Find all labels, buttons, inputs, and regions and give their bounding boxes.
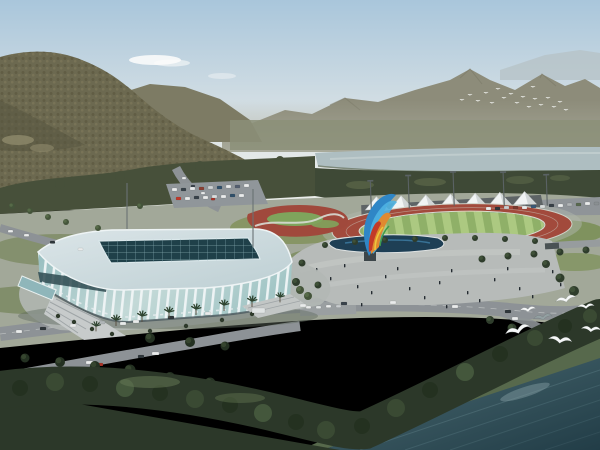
car bbox=[133, 320, 139, 323]
car bbox=[336, 305, 341, 308]
tree-highlight bbox=[557, 249, 561, 253]
tree-highlight bbox=[472, 235, 475, 238]
tree-highlight bbox=[63, 219, 66, 222]
person bbox=[446, 305, 447, 308]
car bbox=[486, 207, 491, 210]
tree-highlight bbox=[95, 225, 98, 228]
car bbox=[576, 203, 581, 206]
car bbox=[70, 324, 76, 327]
tree-highlight bbox=[186, 338, 192, 344]
tree-highlight bbox=[91, 362, 97, 368]
car bbox=[138, 355, 144, 358]
tree-highlight bbox=[221, 342, 226, 347]
person bbox=[467, 291, 468, 294]
car bbox=[505, 310, 511, 313]
car bbox=[176, 197, 181, 200]
tree-highlight bbox=[505, 253, 509, 257]
car bbox=[99, 321, 105, 324]
tree-highlight bbox=[297, 287, 301, 291]
car bbox=[201, 192, 205, 194]
car bbox=[522, 206, 527, 209]
car bbox=[172, 188, 177, 191]
car bbox=[549, 204, 554, 207]
car bbox=[185, 197, 190, 200]
car bbox=[244, 184, 249, 187]
tree-highlight bbox=[382, 237, 385, 240]
tree-highlight bbox=[27, 208, 30, 211]
tree-highlight bbox=[556, 274, 561, 279]
car bbox=[341, 302, 347, 305]
car bbox=[16, 330, 22, 333]
car bbox=[300, 304, 306, 307]
car bbox=[181, 188, 186, 191]
person bbox=[451, 269, 452, 272]
tree-highlight bbox=[442, 235, 445, 238]
car bbox=[208, 186, 213, 189]
car bbox=[585, 202, 590, 205]
tree-highlight bbox=[583, 247, 587, 251]
car bbox=[531, 205, 536, 208]
sports-complex-rendering bbox=[0, 0, 600, 450]
person bbox=[357, 285, 358, 288]
car bbox=[230, 194, 235, 197]
car bbox=[182, 177, 186, 179]
tree-highlight bbox=[487, 317, 491, 321]
car bbox=[152, 352, 159, 355]
tree-highlight bbox=[305, 293, 309, 297]
person bbox=[439, 281, 440, 284]
car bbox=[235, 185, 240, 188]
car bbox=[40, 327, 46, 330]
car bbox=[594, 202, 599, 205]
car bbox=[558, 204, 563, 207]
car bbox=[504, 206, 509, 209]
tree-highlight bbox=[352, 239, 355, 242]
tree-highlight bbox=[56, 358, 62, 364]
car bbox=[211, 198, 215, 200]
car bbox=[540, 205, 545, 208]
car bbox=[495, 207, 500, 210]
person bbox=[397, 267, 398, 270]
car bbox=[194, 196, 199, 199]
tree-highlight bbox=[293, 279, 297, 283]
person bbox=[371, 291, 372, 294]
scrub-plain bbox=[230, 120, 600, 150]
tree-highlight bbox=[137, 203, 140, 206]
car bbox=[24, 234, 29, 237]
car bbox=[190, 187, 195, 190]
car bbox=[316, 306, 321, 309]
person bbox=[385, 275, 386, 278]
car bbox=[78, 248, 83, 251]
car bbox=[120, 322, 126, 325]
car bbox=[8, 230, 13, 233]
pergola bbox=[545, 243, 559, 250]
car bbox=[512, 317, 518, 320]
cloud bbox=[154, 60, 190, 67]
person bbox=[519, 287, 520, 290]
tree-highlight bbox=[532, 238, 535, 241]
person bbox=[494, 278, 495, 281]
person bbox=[560, 283, 561, 286]
tree-highlight bbox=[146, 334, 152, 340]
tree-highlight bbox=[570, 287, 576, 293]
car bbox=[326, 305, 331, 308]
tree-highlight bbox=[9, 203, 12, 206]
person bbox=[424, 296, 425, 299]
person bbox=[552, 270, 553, 273]
person bbox=[330, 277, 331, 280]
car bbox=[221, 195, 226, 198]
car bbox=[199, 187, 204, 190]
car bbox=[239, 194, 244, 197]
tree-highlight bbox=[45, 214, 48, 217]
tree-highlight bbox=[479, 256, 483, 260]
car bbox=[252, 308, 265, 313]
car bbox=[513, 206, 518, 209]
car bbox=[567, 203, 572, 206]
tree-highlight bbox=[502, 236, 505, 239]
car bbox=[390, 301, 396, 304]
tree-highlight bbox=[299, 260, 303, 264]
person bbox=[507, 267, 508, 270]
car bbox=[226, 185, 231, 188]
tree-highlight bbox=[543, 261, 547, 265]
tree-highlight bbox=[322, 242, 325, 245]
tree-highlight bbox=[21, 354, 26, 359]
rendering-canvas: { "palette": { "skyTop": "#a9c6db", "sky… bbox=[0, 0, 600, 450]
car bbox=[203, 196, 208, 199]
car bbox=[205, 312, 211, 315]
car bbox=[212, 195, 217, 198]
tree-highlight bbox=[315, 282, 319, 286]
car bbox=[50, 241, 55, 244]
person bbox=[479, 299, 480, 302]
person bbox=[532, 295, 533, 298]
person bbox=[361, 303, 362, 306]
car bbox=[306, 306, 311, 309]
person bbox=[344, 264, 345, 267]
car bbox=[452, 305, 458, 308]
tree-highlight bbox=[531, 251, 535, 255]
person bbox=[409, 287, 410, 290]
tree-highlight bbox=[412, 236, 415, 239]
cloud bbox=[208, 73, 236, 79]
car bbox=[217, 186, 222, 189]
